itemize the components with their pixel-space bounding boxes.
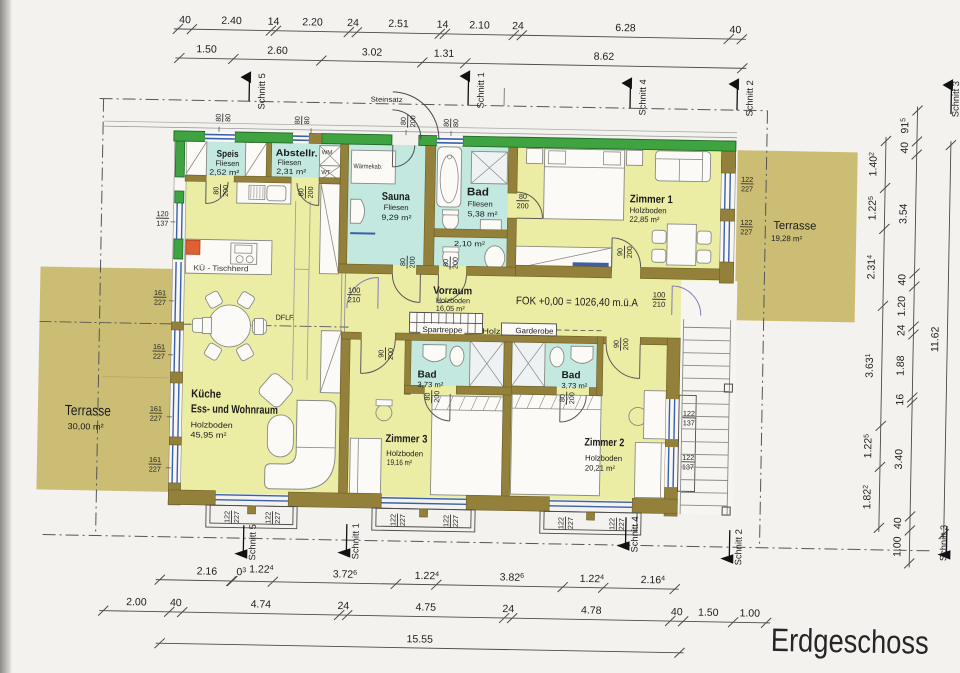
svg-text:80: 80 <box>302 116 311 124</box>
svg-text:19,28 m²: 19,28 m² <box>771 234 802 244</box>
svg-text:200: 200 <box>517 201 529 210</box>
svg-text:200: 200 <box>408 115 417 127</box>
svg-text:24: 24 <box>502 603 514 615</box>
svg-text:161: 161 <box>153 342 165 351</box>
svg-text:14: 14 <box>268 16 280 28</box>
svg-text:20,21 m²: 20,21 m² <box>585 463 615 473</box>
svg-text:122: 122 <box>222 511 231 523</box>
svg-text:Holzboden: Holzboden <box>585 453 622 463</box>
svg-text:Schnitt 1: Schnitt 1 <box>475 72 486 108</box>
svg-text:90: 90 <box>376 350 385 358</box>
svg-text:9,29 m²: 9,29 m² <box>381 213 412 223</box>
svg-text:80: 80 <box>451 119 460 127</box>
svg-text:40: 40 <box>179 14 191 26</box>
svg-text:30,00 m²: 30,00 m² <box>68 421 104 432</box>
svg-text:80: 80 <box>293 116 302 124</box>
svg-text:80: 80 <box>296 188 305 196</box>
svg-text:80: 80 <box>399 117 408 125</box>
svg-text:16,05 m²: 16,05 m² <box>436 304 466 314</box>
svg-text:1.88: 1.88 <box>895 355 907 376</box>
svg-text:Spartreppe: Spartreppe <box>422 325 462 335</box>
svg-text:161: 161 <box>154 288 166 297</box>
svg-text:2.00: 2.00 <box>126 596 147 608</box>
svg-text:Holzboden: Holzboden <box>191 420 233 430</box>
svg-text:FOK +0,00 = 1026,40 m.ü.A: FOK +0,00 = 1026,40 m.ü.A <box>516 295 639 309</box>
svg-text:Holz: Holz <box>482 327 500 336</box>
svg-text:WT: WT <box>321 170 331 176</box>
svg-text:122: 122 <box>556 517 565 529</box>
svg-text:Fliesen: Fliesen <box>468 199 493 208</box>
svg-text:1.00: 1.00 <box>739 607 760 619</box>
svg-text:80: 80 <box>211 187 220 195</box>
svg-text:2.10: 2.10 <box>469 19 490 31</box>
svg-text:1.50: 1.50 <box>698 607 719 619</box>
svg-text:Garderobe: Garderobe <box>515 326 553 336</box>
svg-text:227: 227 <box>150 413 162 422</box>
svg-text:2,31 m²: 2,31 m² <box>276 167 307 177</box>
svg-text:DFLF.: DFLF. <box>276 313 295 322</box>
svg-text:4.74: 4.74 <box>251 598 272 610</box>
svg-text:Bad: Bad <box>467 186 489 198</box>
svg-text:80: 80 <box>519 192 527 201</box>
svg-text:3,73 m²: 3,73 m² <box>561 381 588 390</box>
svg-text:161: 161 <box>149 455 161 464</box>
svg-text:40: 40 <box>730 24 742 36</box>
svg-text:Schnitt 1: Schnitt 1 <box>350 523 361 559</box>
svg-text:16: 16 <box>894 394 906 406</box>
svg-text:24: 24 <box>337 600 349 612</box>
svg-text:2.16: 2.16 <box>197 565 218 577</box>
svg-text:40: 40 <box>170 597 182 609</box>
svg-text:Bad: Bad <box>562 370 581 381</box>
svg-text:122: 122 <box>607 518 616 530</box>
svg-text:19,16 m²: 19,16 m² <box>387 458 412 467</box>
svg-text:1.20: 1.20 <box>896 296 908 317</box>
svg-text:200: 200 <box>625 246 634 258</box>
svg-text:Terrasse: Terrasse <box>773 220 816 233</box>
svg-text:2,10 m²: 2,10 m² <box>454 239 486 249</box>
svg-text:80: 80 <box>398 258 407 266</box>
svg-text:122: 122 <box>441 515 450 527</box>
svg-text:Schnitt 4: Schnitt 4 <box>637 79 648 115</box>
svg-text:100: 100 <box>653 290 666 299</box>
svg-text:227: 227 <box>740 227 752 236</box>
svg-text:227: 227 <box>149 464 161 473</box>
svg-text:3.54: 3.54 <box>897 203 909 224</box>
svg-text:3,73 m²: 3,73 m² <box>417 380 444 389</box>
svg-text:11.62: 11.62 <box>929 326 941 352</box>
svg-text:Terrasse: Terrasse <box>65 403 111 420</box>
svg-text:137: 137 <box>156 219 168 228</box>
svg-text:2,52 m²: 2,52 m² <box>209 168 240 178</box>
svg-text:Schnitt 5: Schnitt 5 <box>247 524 258 560</box>
svg-text:Fliesen: Fliesen <box>215 159 239 168</box>
svg-text:8.62: 8.62 <box>594 51 615 63</box>
svg-text:122: 122 <box>740 218 752 227</box>
svg-text:210: 210 <box>653 300 666 309</box>
svg-text:4.78: 4.78 <box>581 604 602 616</box>
svg-text:200: 200 <box>451 257 460 269</box>
svg-text:40: 40 <box>899 142 911 154</box>
svg-text:24: 24 <box>895 324 907 336</box>
svg-text:KÜ - Tischherd: KÜ - Tischherd <box>193 263 248 273</box>
svg-text:Küche: Küche <box>191 388 221 401</box>
svg-text:200: 200 <box>408 256 417 268</box>
svg-text:Zimmer 2: Zimmer 2 <box>584 436 624 449</box>
svg-text:2.60: 2.60 <box>267 45 288 57</box>
svg-text:80: 80 <box>223 114 232 122</box>
svg-text:200: 200 <box>621 338 630 350</box>
svg-text:Ess- und Wohnraum: Ess- und Wohnraum <box>191 403 278 417</box>
svg-text:90: 90 <box>612 340 621 348</box>
svg-text:210: 210 <box>348 295 361 304</box>
svg-text:122: 122 <box>388 514 397 526</box>
svg-text:1.50: 1.50 <box>196 43 217 55</box>
svg-text:24: 24 <box>347 17 359 29</box>
svg-text:2.51: 2.51 <box>388 18 409 30</box>
svg-text:40: 40 <box>892 517 904 529</box>
svg-text:14: 14 <box>437 19 449 31</box>
svg-text:3.40: 3.40 <box>893 449 905 470</box>
svg-text:Schnitt 5: Schnitt 5 <box>256 73 267 109</box>
svg-text:200: 200 <box>432 391 441 403</box>
svg-text:Sauna: Sauna <box>382 191 411 204</box>
svg-text:100: 100 <box>348 286 361 295</box>
svg-text:2.20: 2.20 <box>302 16 323 28</box>
svg-text:80: 80 <box>558 394 567 402</box>
svg-text:1.31: 1.31 <box>434 48 455 60</box>
svg-text:200: 200 <box>306 186 315 198</box>
svg-text:200: 200 <box>567 392 576 404</box>
svg-text:22,85 m²: 22,85 m² <box>629 215 659 225</box>
svg-text:200: 200 <box>386 348 395 360</box>
svg-text:80: 80 <box>214 114 223 122</box>
svg-text:40: 40 <box>671 606 683 618</box>
svg-text:137: 137 <box>683 418 695 427</box>
svg-text:227: 227 <box>741 184 753 193</box>
svg-text:3.02: 3.02 <box>362 46 383 58</box>
svg-text:90: 90 <box>615 248 624 256</box>
svg-text:Schnitt 2: Schnitt 2 <box>744 80 755 116</box>
svg-text:1.00: 1.00 <box>891 536 903 557</box>
svg-text:15.55: 15.55 <box>406 633 433 645</box>
svg-text:227: 227 <box>153 352 165 361</box>
svg-text:Zimmer 3: Zimmer 3 <box>385 433 427 446</box>
svg-text:200: 200 <box>221 185 230 197</box>
svg-text:Wärmekab.: Wärmekab. <box>353 163 382 171</box>
svg-text:122: 122 <box>741 175 753 184</box>
svg-text:161: 161 <box>150 404 162 413</box>
svg-text:227: 227 <box>154 298 166 307</box>
svg-text:5,38 m²: 5,38 m² <box>467 209 498 219</box>
svg-text:122: 122 <box>263 512 272 524</box>
svg-text:Erdgeschoss: Erdgeschoss <box>770 622 929 661</box>
svg-text:24: 24 <box>512 20 524 32</box>
svg-text:227: 227 <box>566 517 575 529</box>
svg-text:4.75: 4.75 <box>415 601 436 613</box>
svg-text:227: 227 <box>617 518 626 530</box>
svg-text:40: 40 <box>896 274 908 286</box>
svg-text:Zimmer 1: Zimmer 1 <box>630 193 673 206</box>
svg-text:227: 227 <box>398 514 407 526</box>
svg-text:WM: WM <box>322 150 333 156</box>
svg-text:6.28: 6.28 <box>615 22 636 34</box>
svg-text:Steinsatz: Steinsatz <box>371 96 404 104</box>
svg-text:80: 80 <box>441 259 450 267</box>
svg-text:227: 227 <box>232 511 241 523</box>
svg-text:120: 120 <box>156 209 168 218</box>
svg-text:227: 227 <box>451 515 460 527</box>
svg-text:Schnitt 3: Schnitt 3 <box>950 81 960 117</box>
svg-text:Schnitt 4: Schnitt 4 <box>629 516 640 552</box>
svg-text:Fliesen: Fliesen <box>384 203 409 212</box>
svg-text:80: 80 <box>442 119 451 127</box>
svg-text:Schnitt 3: Schnitt 3 <box>938 525 949 561</box>
svg-text:2.40: 2.40 <box>221 15 242 27</box>
svg-text:45,95 m²: 45,95 m² <box>190 430 227 440</box>
svg-text:80: 80 <box>423 392 432 400</box>
svg-text:227: 227 <box>273 512 282 524</box>
svg-text:Fliesen: Fliesen <box>277 158 301 167</box>
svg-text:Schnitt 2: Schnitt 2 <box>733 529 744 565</box>
